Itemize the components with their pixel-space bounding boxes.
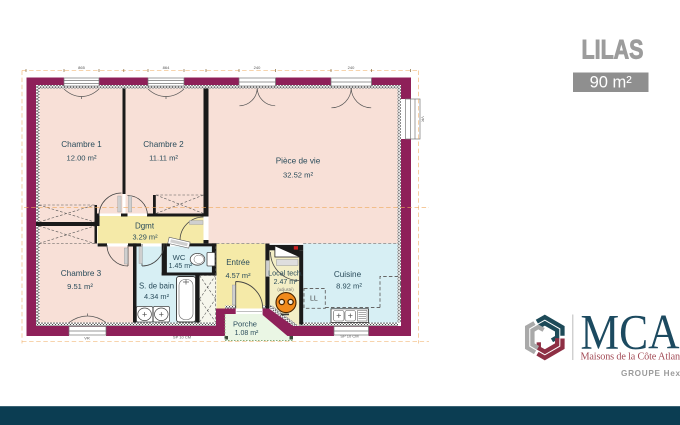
svg-text:4.57 m²: 4.57 m² xyxy=(225,271,251,280)
svg-text:SP 10 CM: SP 10 CM xyxy=(173,335,191,340)
svg-text:240: 240 xyxy=(254,65,261,70)
svg-text:1.08 m²: 1.08 m² xyxy=(235,330,259,337)
svg-text:9.51 m²: 9.51 m² xyxy=(67,282,93,291)
svg-text:Maisons de la Côte Atlantique: Maisons de la Côte Atlantique xyxy=(581,352,680,363)
svg-text:VR: VR xyxy=(421,116,426,122)
svg-text:Porche: Porche xyxy=(233,320,257,329)
svg-text:4.34 m²: 4.34 m² xyxy=(144,292,170,301)
svg-text:3.29 m²: 3.29 m² xyxy=(132,233,158,242)
svg-text:11.11 m²: 11.11 m² xyxy=(149,154,178,163)
svg-text:2.47 m²: 2.47 m² xyxy=(274,279,298,286)
svg-text:Entrée: Entrée xyxy=(226,258,250,267)
svg-text:1.45 m²: 1.45 m² xyxy=(169,263,193,270)
svg-text:864: 864 xyxy=(163,65,170,70)
svg-text:Pièce de vie: Pièce de vie xyxy=(276,157,321,166)
svg-text:Chambre 2: Chambre 2 xyxy=(143,140,184,149)
svg-text:GROUPE HexaOM: GROUPE HexaOM xyxy=(621,369,680,378)
svg-text:12.00 m²: 12.00 m² xyxy=(67,154,97,163)
svg-text:Cuisine: Cuisine xyxy=(334,270,362,279)
svg-text:S. de bain: S. de bain xyxy=(139,282,174,291)
svg-text:90 m²: 90 m² xyxy=(590,74,633,92)
svg-text:Dgmt: Dgmt xyxy=(135,222,155,231)
svg-text:SP 10 CM: SP 10 CM xyxy=(340,334,358,339)
svg-text:WC: WC xyxy=(173,253,186,262)
svg-text:Chambre 1: Chambre 1 xyxy=(61,140,102,149)
svg-text:LL: LL xyxy=(310,296,318,303)
svg-text:240: 240 xyxy=(348,65,355,70)
svg-text:8.92 m²: 8.92 m² xyxy=(336,282,362,291)
svg-text:(adjusté): (adjusté) xyxy=(277,287,294,292)
svg-text:VR: VR xyxy=(84,336,90,341)
svg-text:Chambre 3: Chambre 3 xyxy=(61,269,102,278)
svg-text:865: 865 xyxy=(78,65,85,70)
svg-text:32.52 m²: 32.52 m² xyxy=(283,171,313,180)
svg-text:LILAS: LILAS xyxy=(582,35,644,65)
svg-text:Local tech.: Local tech. xyxy=(268,269,303,278)
